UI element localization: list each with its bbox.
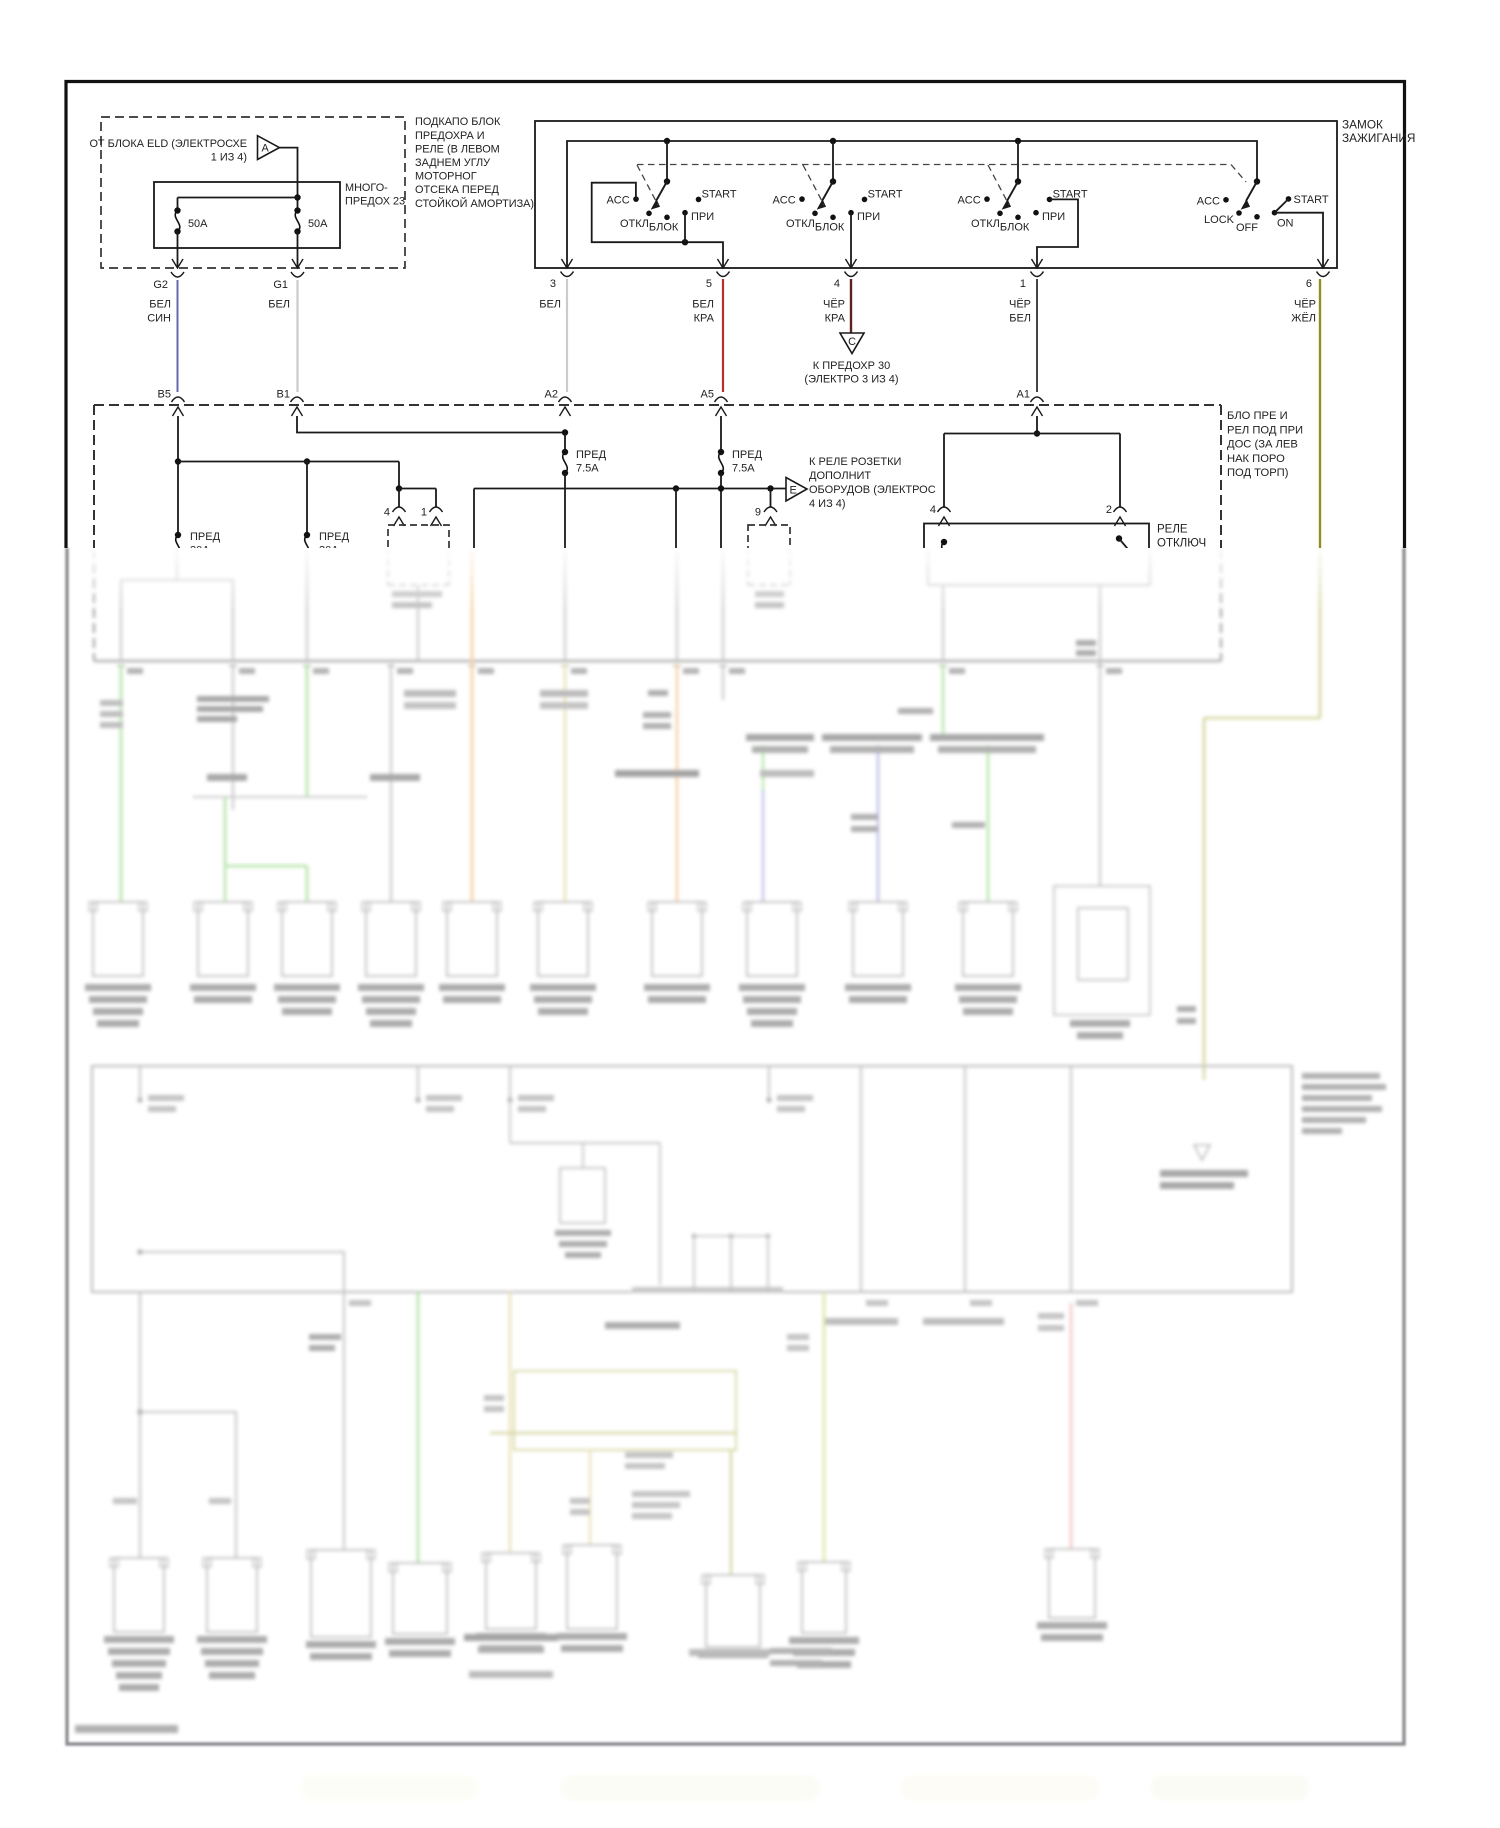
svg-text:4: 4 xyxy=(384,507,390,519)
svg-text:ЗАМОК: ЗАМОК xyxy=(1342,117,1383,131)
svg-text:ОТКЛ: ОТКЛ xyxy=(971,218,1000,230)
svg-text:МНОГО-: МНОГО- xyxy=(345,182,388,194)
svg-text:БЛО ПРЕ И: БЛО ПРЕ И xyxy=(1227,410,1288,422)
svg-text:ACC: ACC xyxy=(1197,195,1220,207)
svg-text:ПОДКАПО БЛОК: ПОДКАПО БЛОК xyxy=(415,116,501,128)
svg-text:ПРИ: ПРИ xyxy=(857,211,880,223)
svg-text:2: 2 xyxy=(1106,504,1112,516)
svg-text:1: 1 xyxy=(421,507,427,519)
svg-text:ПРЕД: ПРЕД xyxy=(319,531,350,543)
svg-text:ПРИ: ПРИ xyxy=(691,211,714,223)
svg-text:ОБОРУДОВ (ЭЛЕКТРОС: ОБОРУДОВ (ЭЛЕКТРОС xyxy=(809,484,936,496)
svg-text:ОТКЛ: ОТКЛ xyxy=(786,218,815,230)
svg-text:(ЭЛЕКТРО 3 ИЗ 4): (ЭЛЕКТРО 3 ИЗ 4) xyxy=(804,374,898,386)
svg-text:3: 3 xyxy=(550,278,556,290)
svg-text:ДОПОЛНИТ: ДОПОЛНИТ xyxy=(809,470,871,482)
svg-text:4: 4 xyxy=(930,504,936,516)
svg-text:РЕЛЕ: РЕЛЕ xyxy=(1157,524,1188,536)
svg-text:A1: A1 xyxy=(1017,389,1030,401)
svg-text:БЕЛ: БЕЛ xyxy=(268,299,290,311)
svg-text:ON: ON xyxy=(1277,218,1294,230)
svg-text:B1: B1 xyxy=(277,389,290,401)
svg-text:ПРЕД: ПРЕД xyxy=(732,449,763,461)
svg-text:БЕЛ: БЕЛ xyxy=(692,299,714,311)
svg-text:К РЕЛЕ РОЗЕТКИ: К РЕЛЕ РОЗЕТКИ xyxy=(809,456,901,468)
svg-text:ОТКЛЮЧ: ОТКЛЮЧ xyxy=(1157,538,1206,550)
svg-text:START: START xyxy=(702,188,737,200)
svg-text:4: 4 xyxy=(834,278,840,290)
svg-text:7.5А: 7.5А xyxy=(732,463,755,475)
svg-text:1 ИЗ 4): 1 ИЗ 4) xyxy=(211,152,247,164)
svg-text:ACC: ACC xyxy=(772,195,795,207)
svg-text:6: 6 xyxy=(1306,278,1312,290)
svg-text:C: C xyxy=(848,336,856,348)
svg-text:ЧЁР: ЧЁР xyxy=(823,299,845,311)
svg-text:START: START xyxy=(868,188,903,200)
svg-text:ЗАЖИГАНИЯ: ЗАЖИГАНИЯ xyxy=(1342,131,1415,145)
svg-text:СТОЙКОЙ АМОРТИЗА): СТОЙКОЙ АМОРТИЗА) xyxy=(415,197,534,210)
svg-text:ПРЕДОХРА И: ПРЕДОХРА И xyxy=(415,130,485,142)
svg-text:КРА: КРА xyxy=(694,313,715,325)
svg-text:ОТ БЛОКА ELD (ЭЛЕКТРОСХЕ: ОТ БЛОКА ELD (ЭЛЕКТРОСХЕ xyxy=(89,138,247,150)
svg-text:1: 1 xyxy=(1020,278,1026,290)
svg-text:К ПРЕДОХР 30: К ПРЕДОХР 30 xyxy=(813,360,891,372)
svg-text:ПОД ТОРП): ПОД ТОРП) xyxy=(1227,467,1289,479)
svg-text:ОТКЛ: ОТКЛ xyxy=(620,218,649,230)
svg-text:ПРЕД: ПРЕД xyxy=(576,449,607,461)
svg-text:50A: 50A xyxy=(308,218,328,230)
svg-text:ЗАДНЕМ УГЛУ: ЗАДНЕМ УГЛУ xyxy=(415,157,490,169)
svg-text:ACC: ACC xyxy=(606,195,629,207)
svg-text:E: E xyxy=(790,485,797,497)
svg-text:50A: 50A xyxy=(188,218,208,230)
svg-text:4 ИЗ 4): 4 ИЗ 4) xyxy=(809,498,846,510)
svg-text:ПРЕДОХ 23: ПРЕДОХ 23 xyxy=(345,196,405,208)
svg-text:ACC: ACC xyxy=(957,195,980,207)
svg-text:БЕЛ: БЕЛ xyxy=(1009,313,1031,325)
svg-text:ПРЕД: ПРЕД xyxy=(190,531,221,543)
svg-text:СИН: СИН xyxy=(147,313,171,325)
svg-text:БЛОК: БЛОК xyxy=(815,221,845,233)
svg-text:A: A xyxy=(262,143,270,155)
svg-text:ЖЁЛ: ЖЁЛ xyxy=(1291,313,1316,325)
svg-text:РЕЛ ПОД ПРИ: РЕЛ ПОД ПРИ xyxy=(1227,424,1303,436)
svg-text:КРА: КРА xyxy=(825,313,846,325)
svg-text:ПРИ: ПРИ xyxy=(1042,211,1065,223)
svg-text:G2: G2 xyxy=(153,279,168,291)
svg-text:7.5А: 7.5А xyxy=(576,463,599,475)
svg-text:МОТОРНОГ: МОТОРНОГ xyxy=(415,171,477,183)
svg-text:A5: A5 xyxy=(701,389,714,401)
svg-text:БЕЛ: БЕЛ xyxy=(539,299,561,311)
svg-text:НАК ПОРО: НАК ПОРО xyxy=(1227,453,1285,465)
svg-text:РЕЛЕ (В ЛЕВОМ: РЕЛЕ (В ЛЕВОМ xyxy=(415,143,500,155)
svg-text:БЛОК: БЛОК xyxy=(649,221,679,233)
svg-text:ДОС (ЗА ЛЕВ: ДОС (ЗА ЛЕВ xyxy=(1227,439,1298,451)
svg-text:БЛОК: БЛОК xyxy=(1000,221,1030,233)
svg-text:БЕЛ: БЕЛ xyxy=(149,299,171,311)
svg-text:ЧЁР: ЧЁР xyxy=(1009,299,1031,311)
svg-text:B5: B5 xyxy=(158,389,171,401)
svg-text:G1: G1 xyxy=(273,279,288,291)
svg-text:ЧЁР: ЧЁР xyxy=(1294,299,1316,311)
svg-text:OFF: OFF xyxy=(1236,222,1258,234)
svg-text:A2: A2 xyxy=(545,389,558,401)
svg-text:ОТСЕКА ПЕРЕД: ОТСЕКА ПЕРЕД xyxy=(415,184,500,196)
svg-text:START: START xyxy=(1294,194,1329,206)
svg-text:LOCK: LOCK xyxy=(1204,214,1235,226)
svg-text:5: 5 xyxy=(706,278,712,290)
svg-text:9: 9 xyxy=(755,507,761,519)
